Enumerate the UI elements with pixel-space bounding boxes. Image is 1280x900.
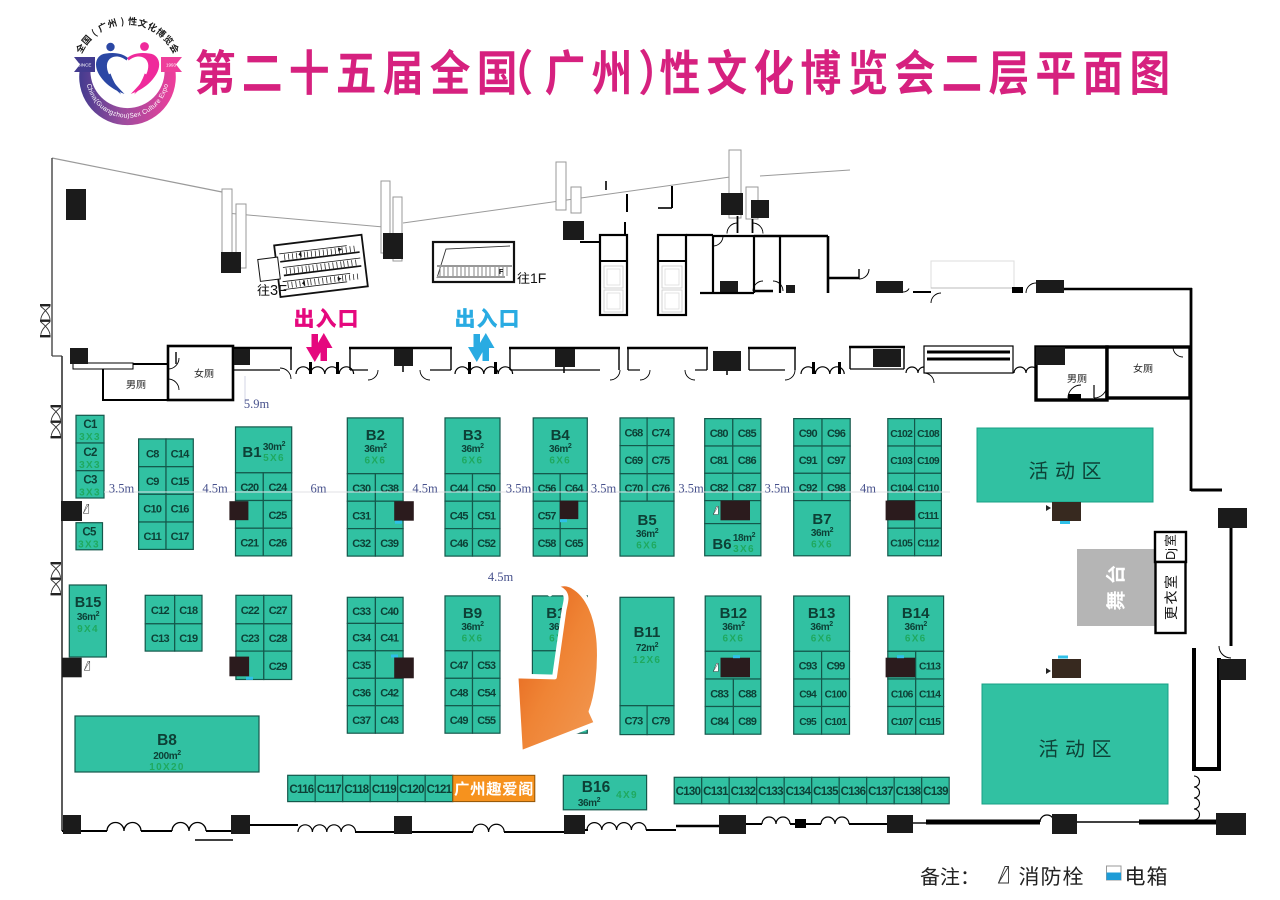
svg-text:C93: C93 (799, 661, 818, 673)
svg-text:C104: C104 (890, 483, 913, 494)
svg-text:C31: C31 (352, 510, 371, 522)
svg-text:C28: C28 (269, 633, 288, 645)
svg-text:3.5m: 3.5m (506, 482, 532, 496)
svg-text:6X6: 6X6 (549, 455, 571, 466)
svg-text:C92: C92 (799, 482, 818, 494)
svg-text:C34: C34 (352, 633, 372, 645)
svg-text:C94: C94 (799, 689, 817, 700)
svg-text:C121: C121 (427, 784, 453, 796)
svg-text:B15: B15 (75, 595, 102, 611)
svg-text:C99: C99 (827, 661, 846, 673)
svg-text:C42: C42 (380, 688, 399, 700)
svg-text:B14: B14 (902, 605, 930, 622)
svg-text:4X9: 4X9 (616, 790, 638, 801)
svg-text:C1: C1 (83, 419, 98, 431)
svg-text:C49: C49 (450, 715, 469, 727)
svg-text:4.5m: 4.5m (412, 482, 438, 496)
svg-text:C109: C109 (917, 456, 940, 467)
svg-text:C116: C116 (289, 784, 313, 796)
svg-text:C53: C53 (477, 660, 496, 672)
svg-text:C135: C135 (813, 786, 839, 798)
svg-text:C56: C56 (538, 483, 557, 495)
svg-text:C117: C117 (317, 784, 341, 796)
svg-text:C3: C3 (83, 475, 97, 487)
svg-text:C111: C111 (918, 511, 940, 522)
svg-text:4m: 4m (860, 482, 876, 496)
svg-text:C103: C103 (890, 456, 913, 467)
svg-text:C83: C83 (710, 688, 729, 700)
svg-text:C54: C54 (477, 688, 497, 700)
svg-text:C9: C9 (146, 476, 159, 488)
svg-text:C82: C82 (710, 482, 729, 494)
svg-text:6m: 6m (311, 482, 327, 496)
svg-text:B7: B7 (812, 511, 831, 528)
svg-text:C10: C10 (143, 504, 162, 516)
svg-text:B2: B2 (366, 427, 385, 444)
svg-text:C64: C64 (565, 483, 585, 495)
svg-text:B1: B1 (242, 444, 261, 461)
svg-text:C134: C134 (786, 786, 812, 798)
svg-text:C2: C2 (83, 447, 97, 459)
svg-text:F: F (499, 269, 504, 276)
svg-text:C81: C81 (710, 455, 729, 467)
svg-text:C139: C139 (923, 786, 948, 798)
svg-text:C52: C52 (477, 538, 496, 550)
svg-text:C32: C32 (352, 538, 371, 550)
svg-text:B13: B13 (808, 605, 836, 622)
svg-text:C130: C130 (676, 786, 701, 798)
svg-text:B4: B4 (551, 427, 571, 444)
svg-text:C70: C70 (625, 483, 644, 495)
svg-text:C48: C48 (450, 688, 469, 700)
svg-text:C88: C88 (738, 688, 757, 700)
svg-text:200m2: 200m2 (153, 750, 181, 762)
svg-text:C115: C115 (919, 717, 941, 728)
svg-text:9X4: 9X4 (77, 624, 99, 635)
svg-text:6X6: 6X6 (636, 541, 658, 552)
svg-text:C118: C118 (344, 784, 369, 796)
svg-text:C73: C73 (625, 716, 644, 728)
svg-text:C12: C12 (151, 605, 170, 617)
svg-text:C29: C29 (269, 661, 288, 673)
svg-text:B6: B6 (712, 536, 731, 553)
svg-text:C18: C18 (179, 605, 198, 617)
svg-text:C35: C35 (352, 660, 371, 672)
svg-text:C90: C90 (799, 428, 818, 440)
svg-text:3X3: 3X3 (79, 488, 101, 499)
svg-text:C37: C37 (352, 715, 371, 727)
svg-text:6X6: 6X6 (462, 455, 484, 466)
svg-text:5.9m: 5.9m (244, 397, 270, 411)
svg-text:1F: 1F (530, 270, 546, 286)
svg-text:C41: C41 (380, 633, 399, 645)
svg-text:5X6: 5X6 (263, 453, 285, 464)
svg-text:C33: C33 (352, 606, 371, 618)
svg-text:6X6: 6X6 (905, 634, 927, 645)
svg-text:C26: C26 (268, 538, 287, 550)
svg-text:4.5m: 4.5m (202, 482, 228, 496)
svg-text:C45: C45 (450, 510, 469, 522)
svg-text:C138: C138 (896, 786, 922, 798)
svg-text:12X6: 12X6 (633, 655, 662, 666)
svg-text:C38: C38 (380, 483, 399, 495)
svg-text:C95: C95 (799, 717, 817, 728)
svg-text:C57: C57 (538, 510, 557, 522)
svg-text:C27: C27 (269, 605, 288, 617)
svg-text:C36: C36 (352, 688, 371, 700)
svg-text:C119: C119 (372, 784, 396, 796)
svg-text:C23: C23 (241, 633, 260, 645)
svg-text:C86: C86 (738, 455, 757, 467)
svg-text:C133: C133 (758, 786, 783, 798)
svg-text:C11: C11 (144, 531, 162, 543)
svg-text:3X3: 3X3 (78, 540, 100, 551)
svg-text:C98: C98 (827, 482, 846, 494)
svg-text:3F: 3F (270, 283, 287, 299)
svg-text:C17: C17 (171, 531, 190, 543)
svg-text:C25: C25 (268, 510, 287, 522)
svg-text:C91: C91 (799, 455, 818, 467)
svg-text:C19: C19 (179, 633, 198, 645)
svg-text:C8: C8 (146, 448, 159, 460)
svg-text:C76: C76 (652, 483, 671, 495)
svg-text:B11: B11 (634, 624, 661, 641)
svg-text:SINCE: SINCE (78, 63, 92, 68)
svg-text:C132: C132 (731, 786, 756, 798)
svg-text:C16: C16 (171, 504, 190, 516)
svg-text:C112: C112 (917, 539, 939, 550)
svg-text:C107: C107 (891, 717, 914, 728)
svg-text:C89: C89 (738, 716, 757, 728)
svg-text:C65: C65 (565, 538, 584, 550)
svg-text:C58: C58 (538, 538, 557, 550)
svg-text:3.5m: 3.5m (678, 482, 704, 496)
svg-text:C96: C96 (827, 428, 846, 440)
svg-text:C106: C106 (891, 689, 914, 700)
svg-text:C30: C30 (352, 483, 371, 495)
svg-text:3.5m: 3.5m (591, 482, 617, 496)
svg-text:C114: C114 (919, 689, 941, 700)
svg-text:C47: C47 (450, 660, 469, 672)
svg-text:B16: B16 (582, 779, 611, 796)
svg-text:Dj: Dj (1164, 548, 1178, 560)
svg-text:C44: C44 (450, 483, 470, 495)
svg-text:C120: C120 (399, 784, 424, 796)
svg-text:6X6: 6X6 (723, 634, 745, 645)
svg-text:C13: C13 (151, 633, 170, 645)
svg-text:3X3: 3X3 (79, 460, 101, 471)
svg-text:6X6: 6X6 (462, 633, 484, 644)
svg-text:B3: B3 (463, 427, 482, 444)
svg-text:6X6: 6X6 (811, 540, 833, 551)
svg-text:B9: B9 (463, 605, 482, 622)
svg-text:C5: C5 (82, 527, 97, 539)
svg-text:C80: C80 (710, 428, 729, 440)
svg-text:C131: C131 (703, 786, 729, 798)
svg-text:C69: C69 (625, 455, 644, 467)
svg-text:3.5m: 3.5m (109, 482, 135, 496)
svg-text:C46: C46 (450, 538, 469, 550)
svg-text:C113: C113 (919, 662, 941, 673)
svg-text:C74: C74 (652, 427, 672, 439)
svg-text:B8: B8 (157, 732, 177, 749)
svg-text:C84: C84 (710, 716, 730, 728)
svg-text:C110: C110 (917, 483, 939, 494)
svg-text:C50: C50 (477, 483, 496, 495)
svg-text:3.5m: 3.5m (765, 482, 791, 496)
svg-text:B5: B5 (638, 512, 657, 529)
svg-text:C85: C85 (738, 428, 757, 440)
svg-text:6X6: 6X6 (811, 634, 833, 645)
svg-text:C97: C97 (827, 455, 846, 467)
svg-text:10X20: 10X20 (149, 762, 184, 773)
svg-text:6X6: 6X6 (365, 455, 387, 466)
svg-text:C68: C68 (625, 427, 644, 439)
svg-text:C101: C101 (825, 717, 848, 728)
svg-text:C15: C15 (171, 476, 190, 488)
svg-text:C87: C87 (738, 482, 757, 494)
svg-text:C105: C105 (890, 539, 913, 550)
svg-text:3X3: 3X3 (79, 432, 101, 443)
svg-text:4.5m: 4.5m (488, 570, 514, 584)
svg-text:C102: C102 (890, 429, 913, 440)
svg-text:C137: C137 (868, 786, 893, 798)
svg-text:C55: C55 (477, 715, 496, 727)
svg-text:C43: C43 (380, 715, 399, 727)
svg-text:C136: C136 (841, 786, 866, 798)
svg-text:B12: B12 (720, 605, 748, 622)
svg-text:C100: C100 (825, 689, 848, 700)
svg-text:C51: C51 (477, 510, 496, 522)
svg-text:C108: C108 (917, 429, 940, 440)
svg-text:C21: C21 (240, 538, 259, 550)
svg-text:C39: C39 (380, 538, 399, 550)
svg-text:C79: C79 (652, 716, 671, 728)
svg-text:C40: C40 (380, 606, 399, 618)
svg-text:3X6: 3X6 (733, 544, 755, 555)
svg-text:C14: C14 (171, 448, 191, 460)
svg-text:C75: C75 (652, 455, 671, 467)
svg-text:C22: C22 (241, 605, 260, 617)
svg-text:1993: 1993 (166, 63, 177, 68)
